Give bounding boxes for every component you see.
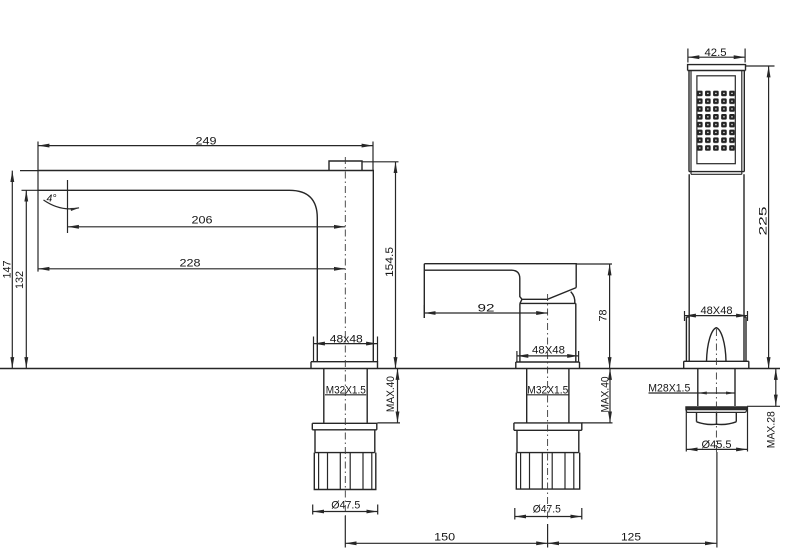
svg-text:154.5: 154.5: [384, 247, 396, 277]
svg-text:92: 92: [478, 303, 495, 315]
svg-text:206: 206: [192, 214, 213, 226]
svg-text:48x48: 48x48: [330, 333, 363, 345]
svg-text:228: 228: [180, 257, 201, 269]
svg-text:MAX.40: MAX.40: [385, 376, 397, 412]
svg-text:48X48: 48X48: [701, 305, 733, 317]
svg-text:MAX.28: MAX.28: [766, 411, 778, 448]
svg-text:225: 225: [758, 207, 770, 236]
svg-text:4°: 4°: [46, 193, 56, 205]
svg-text:48X48: 48X48: [532, 344, 565, 356]
svg-text:Ø47.5: Ø47.5: [331, 499, 360, 511]
svg-text:MAX.40: MAX.40: [599, 377, 611, 413]
svg-text:78: 78: [598, 310, 610, 322]
svg-text:125: 125: [621, 531, 641, 543]
svg-text:42.5: 42.5: [705, 47, 727, 59]
svg-text:Ø45.5: Ø45.5: [702, 439, 732, 451]
svg-text:Ø47.5: Ø47.5: [533, 503, 561, 515]
svg-text:147: 147: [2, 261, 14, 279]
svg-text:150: 150: [434, 531, 455, 543]
svg-text:249: 249: [196, 135, 217, 147]
svg-text:132: 132: [14, 271, 26, 289]
